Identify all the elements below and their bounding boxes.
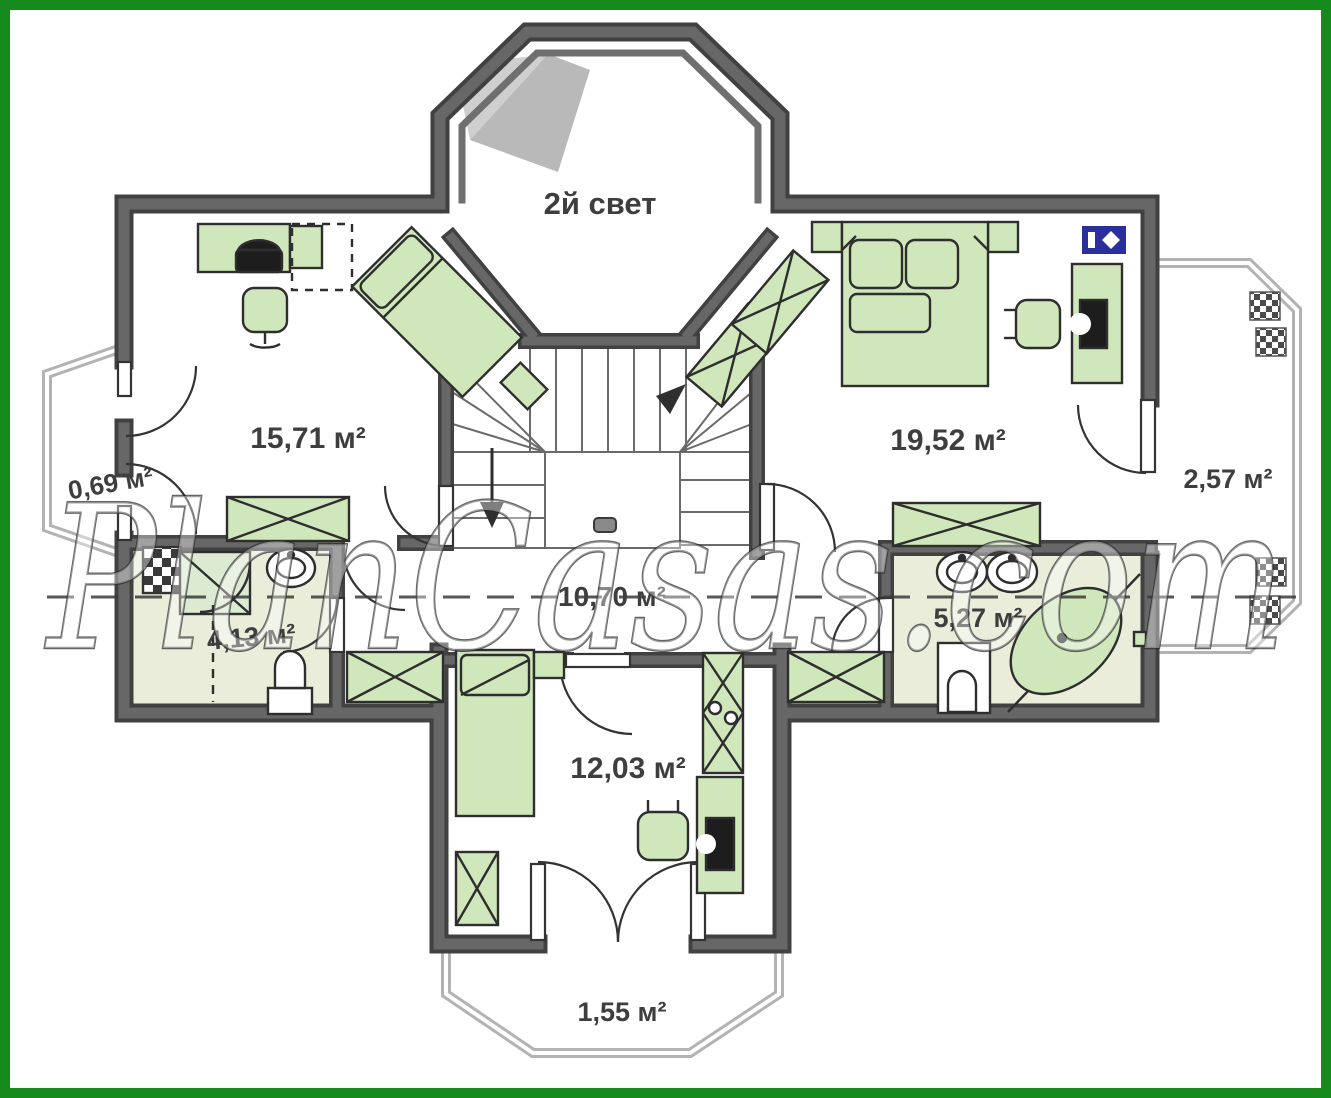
bottom-double-doors xyxy=(531,862,705,942)
tower-label: 2й свет xyxy=(544,186,657,221)
room-label-left-bedroom: 15,71 м² xyxy=(250,422,366,455)
desk-icon xyxy=(198,224,322,272)
room-label-bottom-balcony: 1,55 м² xyxy=(577,997,666,1027)
double-bed-icon xyxy=(812,222,1018,386)
chair-icon xyxy=(243,288,287,348)
nightstand-icon xyxy=(812,222,842,252)
desk-icon xyxy=(696,777,743,893)
desk-icon xyxy=(1069,264,1122,383)
chair-icon xyxy=(638,800,688,860)
logo-plate xyxy=(1082,226,1126,254)
nightstand-icon xyxy=(988,222,1018,252)
room-label-right-bedroom: 19,52 м² xyxy=(890,424,1006,457)
chest-icon xyxy=(456,852,498,925)
room-label-bottom-bedroom: 12,03 м² xyxy=(570,752,686,785)
watermark: PlanCasas.com xyxy=(44,463,1287,696)
bed-icon xyxy=(352,227,522,397)
floor-plan-page: 2й свет 15,71 м² 19,52 м² 0,69 м² 2,57 м… xyxy=(0,0,1331,1098)
chair-icon xyxy=(1004,300,1060,348)
floor-plan: 2й свет 15,71 м² 19,52 м² 0,69 м² 2,57 м… xyxy=(0,0,1331,1098)
bed-stool xyxy=(501,363,548,410)
